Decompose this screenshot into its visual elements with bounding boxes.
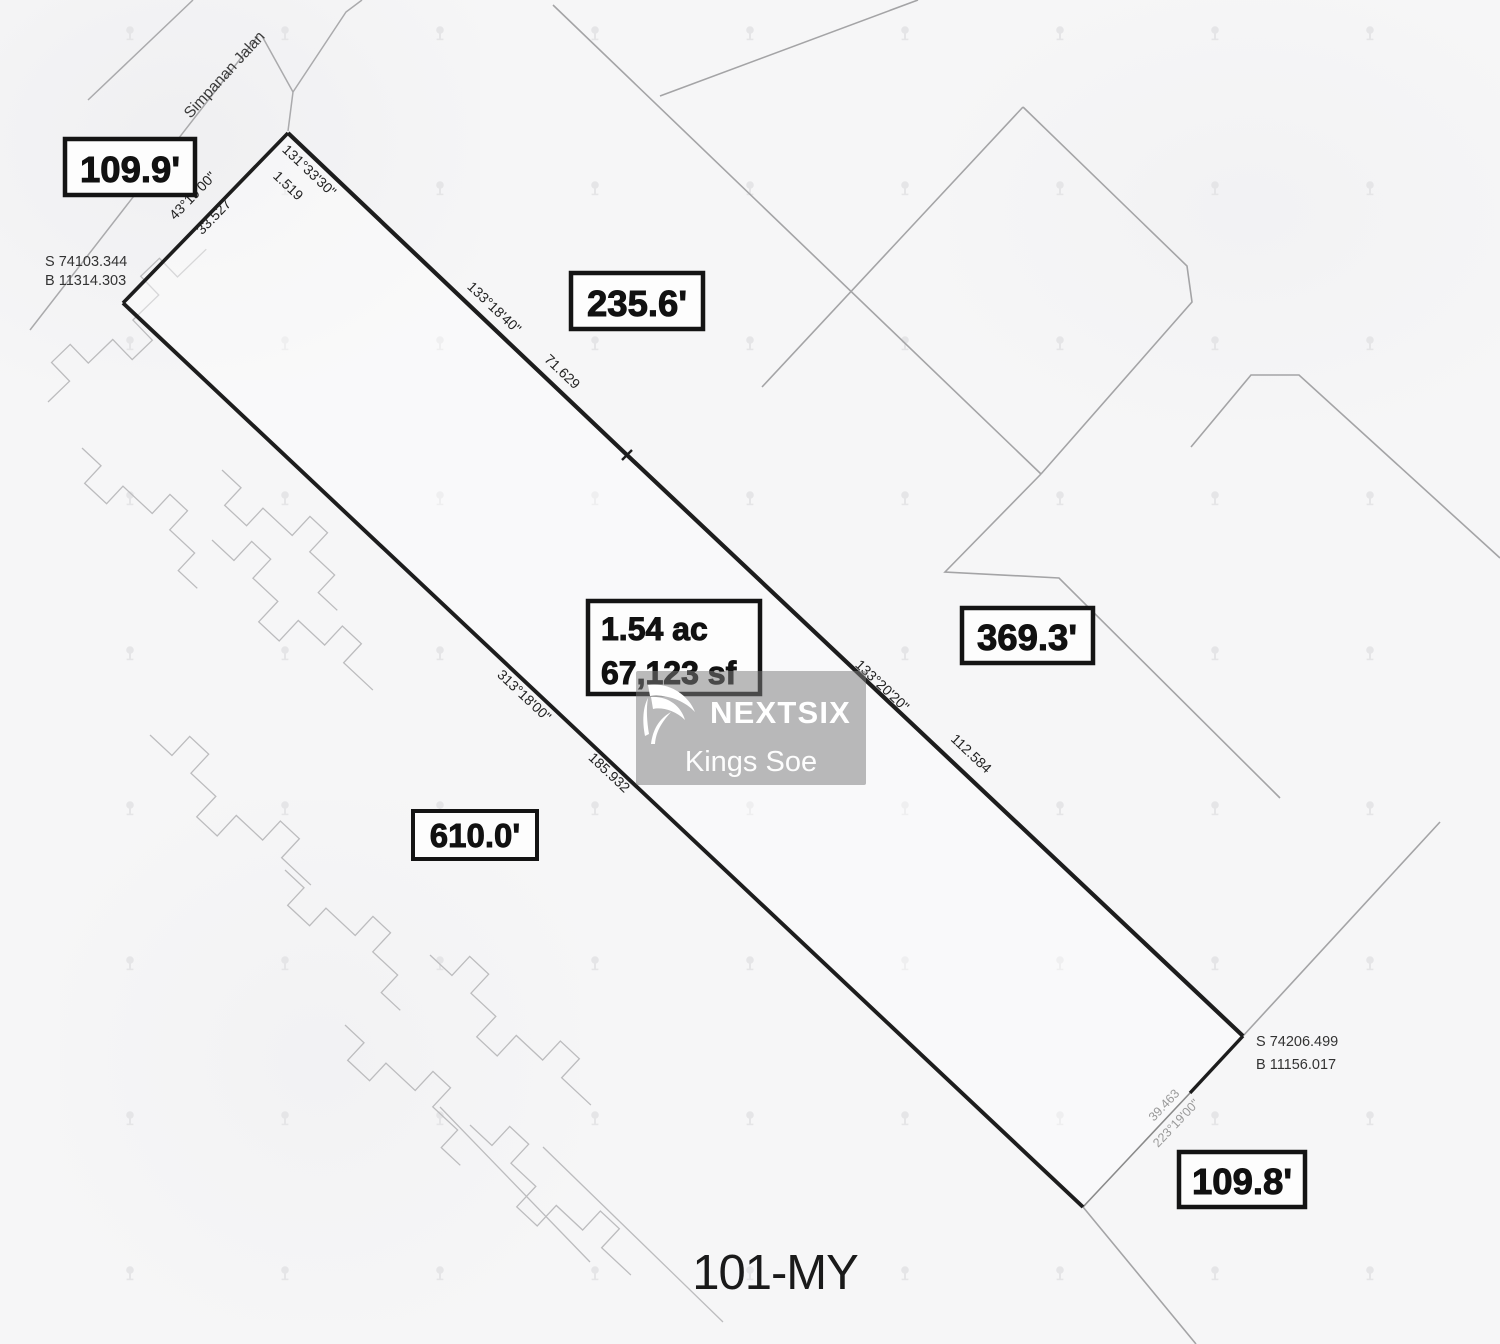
svg-text:235.6': 235.6' [587, 283, 687, 324]
svg-text:NEXTSIX: NEXTSIX [710, 695, 851, 730]
svg-text:Kings Soe: Kings Soe [685, 746, 817, 778]
svg-text:109.9': 109.9' [80, 149, 180, 190]
svg-text:610.0': 610.0' [430, 817, 520, 854]
svg-text:B 11156.017: B 11156.017 [1256, 1057, 1336, 1073]
svg-text:101-MY: 101-MY [692, 1246, 858, 1300]
svg-text:369.3': 369.3' [977, 617, 1077, 658]
svg-text:S 74103.344: S 74103.344 [45, 254, 127, 270]
svg-text:B 11314.303: B 11314.303 [45, 273, 126, 289]
svg-text:S 74206.499: S 74206.499 [1256, 1034, 1338, 1050]
svg-text:1.54 ac: 1.54 ac [601, 611, 708, 647]
svg-text:109.8': 109.8' [1192, 1161, 1292, 1202]
